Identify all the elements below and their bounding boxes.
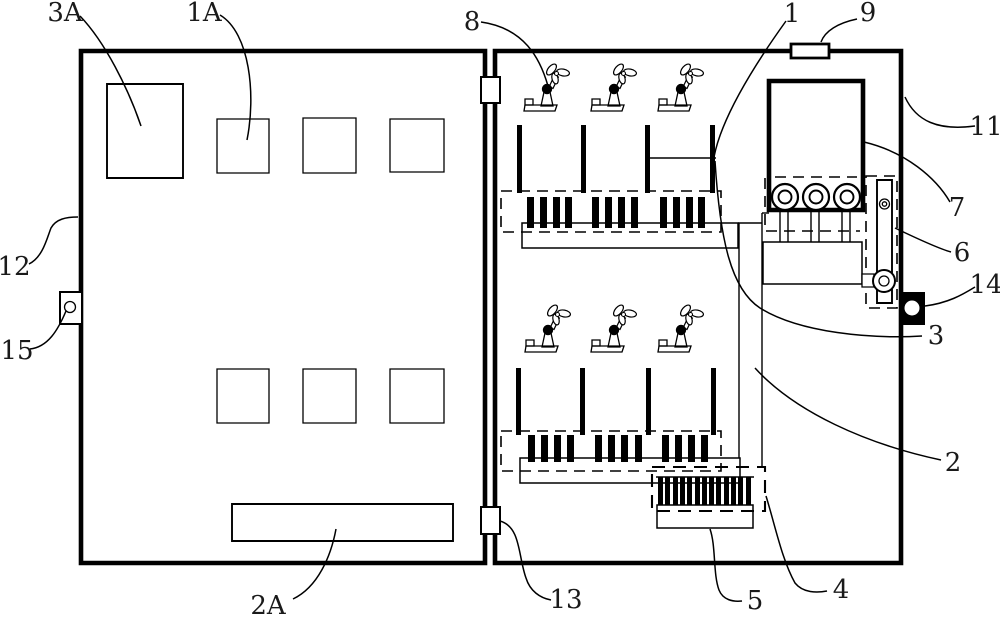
callout-15: 15 xyxy=(0,338,33,364)
partition-bar xyxy=(645,125,650,193)
left-door xyxy=(60,51,485,563)
mounting-plate xyxy=(657,505,753,528)
fan-unit-icon xyxy=(524,62,570,111)
door-square xyxy=(390,369,444,423)
callout-1: 1 xyxy=(784,1,801,27)
fan-unit-icon xyxy=(658,62,704,111)
hinge-icon xyxy=(481,77,500,103)
left-door-outline xyxy=(81,51,485,563)
callout-9: 9 xyxy=(860,0,877,26)
partition-bar xyxy=(711,368,716,435)
callout-1A: 1A xyxy=(186,0,221,26)
breaker-knob xyxy=(834,184,860,210)
door-lock-15 xyxy=(60,292,82,324)
leader-13 xyxy=(500,521,551,600)
partition-bar xyxy=(710,125,715,193)
callout-3A: 3A xyxy=(47,0,82,26)
leader-lines xyxy=(29,15,975,601)
callout-14: 14 xyxy=(969,272,1000,298)
fan-unit-icon xyxy=(525,303,571,352)
breaker-box-assembly xyxy=(763,81,863,284)
patent-figure: 3A 1A 8 1 9 11 7 6 14 3 2 12 15 2A 13 5 … xyxy=(0,0,1000,622)
breaker-knob xyxy=(803,184,829,210)
upper-component-row xyxy=(501,62,738,248)
side-lock-14 xyxy=(900,292,925,325)
callout-6: 6 xyxy=(954,240,971,266)
leader-4 xyxy=(766,496,827,592)
leader-9 xyxy=(821,19,857,42)
callout-3: 3 xyxy=(928,323,945,349)
leader-1A xyxy=(220,15,251,140)
leader-3A xyxy=(80,16,141,126)
callout-4: 4 xyxy=(833,577,850,603)
door-louver-2A xyxy=(232,504,453,541)
leader-6 xyxy=(895,228,951,252)
leader-11 xyxy=(905,97,975,127)
partition-bar xyxy=(517,125,522,193)
partition-bar xyxy=(580,368,585,435)
top-vent xyxy=(791,44,829,58)
door-square-1A xyxy=(217,119,269,173)
leader-12 xyxy=(29,217,78,264)
cabinet-line-drawing xyxy=(0,0,1000,622)
callout-13: 13 xyxy=(549,587,582,613)
callout-2: 2 xyxy=(945,450,962,476)
partition-bar xyxy=(581,125,586,193)
leader-14 xyxy=(925,287,975,306)
leader-2 xyxy=(755,368,941,460)
hinge-arm-assembly xyxy=(862,176,897,308)
callout-8: 8 xyxy=(464,9,481,35)
partition-bar xyxy=(516,368,521,435)
connector-pipes xyxy=(780,210,850,242)
callout-2A: 2A xyxy=(250,593,285,619)
breaker-knob xyxy=(772,184,798,210)
door-square xyxy=(303,369,356,423)
door-square xyxy=(303,118,356,173)
fan-unit-icon xyxy=(658,303,704,352)
lower-component-row xyxy=(501,303,740,483)
callout-11: 11 xyxy=(969,114,1000,140)
junction-block xyxy=(763,242,862,284)
pivot-wheel xyxy=(873,270,895,292)
leader-1 xyxy=(714,21,786,157)
door-square xyxy=(390,119,444,172)
fan-unit-icon xyxy=(591,303,637,352)
door-square xyxy=(217,369,269,423)
callout-12: 12 xyxy=(0,254,31,280)
callout-5: 5 xyxy=(747,588,764,614)
door-window-3A xyxy=(107,84,183,178)
partition-bar xyxy=(646,368,651,435)
callout-7: 7 xyxy=(949,195,966,221)
hinge-icon xyxy=(481,507,500,534)
fan-unit-icon xyxy=(591,62,637,111)
